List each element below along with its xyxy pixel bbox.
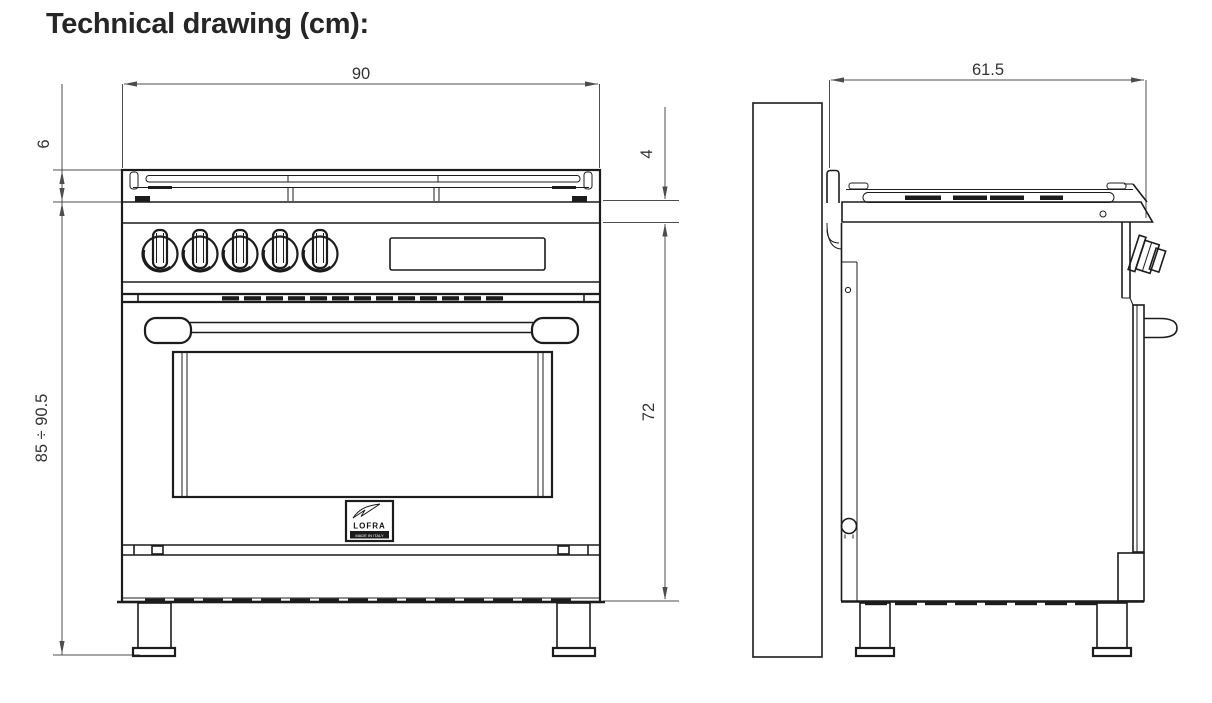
front-feet xyxy=(133,603,595,656)
logo-swoosh-icon xyxy=(353,504,380,518)
knob xyxy=(223,230,258,272)
screw-detail xyxy=(1100,211,1106,217)
dim-label-depth: 61.5 xyxy=(972,61,1004,79)
front-view: 90 6 85 ÷ 90.5 xyxy=(33,65,679,656)
dim-right-stack: 4 72 xyxy=(603,107,679,601)
logo-caption: MADE IN ITALY xyxy=(355,533,384,538)
burner-knobs xyxy=(143,230,338,272)
dim-label-grate-height: 6 xyxy=(35,139,53,148)
knob xyxy=(303,230,338,272)
kick-panel xyxy=(1118,553,1144,601)
dim-depth: 61.5 xyxy=(830,61,1147,218)
range-side-body xyxy=(841,222,1177,656)
control-panel xyxy=(143,230,546,272)
door-handle xyxy=(145,318,578,343)
dim-label-overall-height: 85 ÷ 90.5 xyxy=(33,394,51,463)
knob-side-profile xyxy=(1128,235,1168,279)
page-title: Technical drawing (cm): xyxy=(46,8,369,41)
vent-slots xyxy=(222,296,503,300)
door-side xyxy=(1133,305,1144,552)
display-panel xyxy=(390,238,545,270)
base-vents xyxy=(865,602,1097,605)
dim-label-width: 90 xyxy=(352,65,370,83)
side-feet xyxy=(856,603,1131,656)
vent-strip xyxy=(138,294,584,302)
door-window xyxy=(173,352,552,497)
dim-width-90: 90 xyxy=(123,65,600,168)
handle-side-profile xyxy=(1144,319,1177,338)
brand-logo: LOFRA MADE IN ITALY xyxy=(346,501,393,541)
lower-front xyxy=(133,545,595,656)
cooktop-side-profile xyxy=(842,183,1153,222)
wall-section xyxy=(753,103,822,657)
oven-door: LOFRA MADE IN ITALY xyxy=(145,318,578,541)
backguard-flue xyxy=(827,171,842,250)
technical-drawing-page: Technical drawing (cm): 90 xyxy=(0,0,1212,703)
logo-brand: LOFRA xyxy=(353,522,386,531)
knob xyxy=(143,230,178,272)
dim-label-body-height: 72 xyxy=(640,403,658,421)
knob xyxy=(183,230,218,272)
burner-detail xyxy=(905,196,1063,201)
technical-drawing-canvas: 90 6 85 ÷ 90.5 xyxy=(0,0,1212,703)
side-view: 61.5 xyxy=(753,61,1177,657)
gas-inlet xyxy=(842,519,857,534)
plinth-vents xyxy=(145,599,571,602)
cooktop-grate xyxy=(130,172,592,202)
knob xyxy=(263,230,298,272)
dim-label-worktop-band: 4 xyxy=(638,149,656,158)
